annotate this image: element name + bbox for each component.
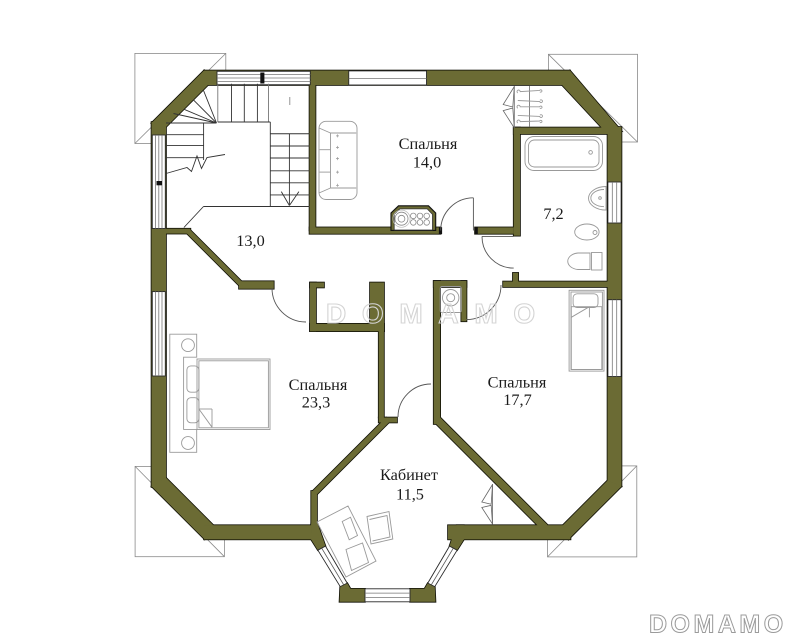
svg-text:23,3: 23,3 [302, 393, 331, 412]
svg-text:DOMAMO: DOMAMO [649, 611, 787, 639]
svg-text:14,0: 14,0 [413, 153, 442, 172]
svg-text:7,2: 7,2 [543, 204, 563, 223]
svg-text:13,0: 13,0 [236, 231, 265, 250]
svg-text:Спальня: Спальня [399, 134, 458, 153]
svg-text:Кабинет: Кабинет [380, 465, 438, 484]
svg-text:17,7: 17,7 [503, 390, 532, 409]
svg-text:Спальня: Спальня [488, 373, 547, 392]
svg-text:Спальня: Спальня [289, 375, 348, 394]
svg-text:11,5: 11,5 [396, 485, 424, 504]
svg-text:DOMAMO: DOMAMO [326, 298, 551, 329]
